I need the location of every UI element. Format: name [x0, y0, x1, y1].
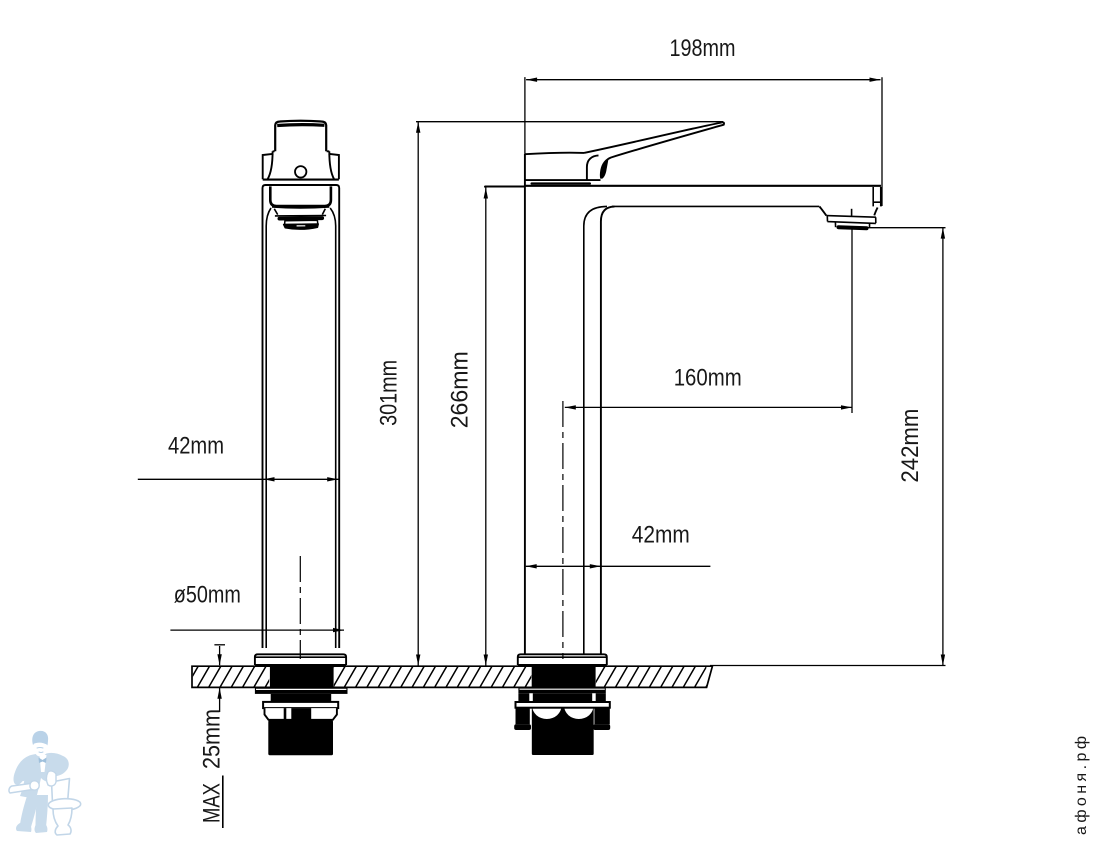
svg-text:301mm: 301mm	[376, 360, 403, 426]
svg-text:198mm: 198mm	[670, 35, 736, 62]
svg-text:242mm: 242mm	[897, 409, 924, 483]
svg-text:160mm: 160mm	[674, 365, 742, 392]
svg-text:25mm: 25mm	[199, 709, 226, 769]
svg-text:MAX: MAX	[199, 783, 226, 823]
svg-text:266mm: 266mm	[447, 351, 474, 428]
svg-text:42mm: 42mm	[168, 432, 224, 459]
svg-text:ø50mm: ø50mm	[174, 582, 241, 609]
svg-text:42mm: 42mm	[632, 522, 690, 549]
